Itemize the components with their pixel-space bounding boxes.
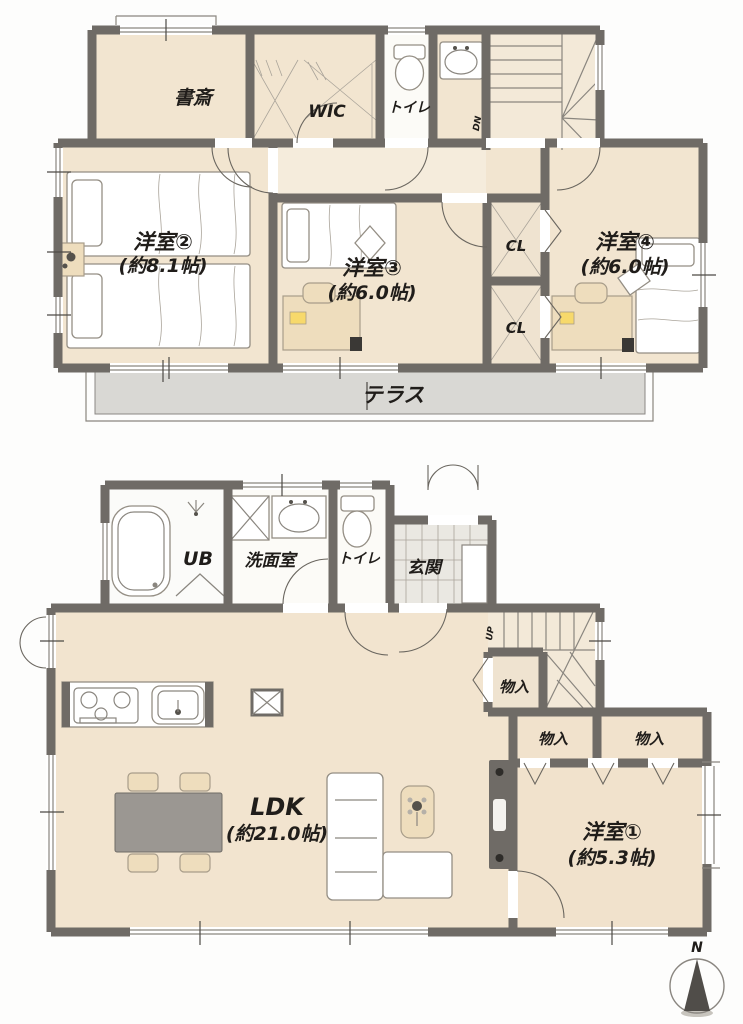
- toilet-2f-icon: [394, 45, 425, 90]
- label-bedroom1-size: (約5.3帖): [567, 847, 656, 869]
- compass-icon: N: [670, 940, 724, 1017]
- label-storage-left: 物入: [538, 730, 568, 748]
- label-wic: WIC: [308, 102, 346, 122]
- label-washroom: 洗面室: [245, 551, 299, 571]
- label-study: 書斎: [174, 87, 215, 109]
- label-bath: UB: [183, 548, 213, 570]
- vanity-sink-icon: [272, 496, 326, 538]
- label-bedroom2-size: (約8.1帖): [118, 255, 207, 277]
- label-closet-upper: CL: [506, 237, 527, 255]
- label-bedroom4-size: (約6.0帖): [580, 256, 669, 278]
- compass-north-label: N: [691, 940, 703, 956]
- label-bedroom3: 洋室③: [342, 256, 402, 280]
- basin-2f-icon: [440, 42, 483, 79]
- floor-plan-drawing: 書斎 WIC トイレ DN 洋室② (約8.1帖) 洋室③ (約6.0帖) CL…: [0, 0, 743, 1024]
- side-table-icon: [401, 786, 434, 838]
- kitchen-counter-icon: [62, 682, 213, 727]
- washing-machine-icon: [231, 496, 269, 540]
- label-bedroom2: 洋室②: [133, 230, 193, 254]
- pipe-space-icon: [252, 690, 282, 715]
- toilet-1f-icon: [341, 496, 374, 547]
- label-bedroom3-size: (約6.0帖): [327, 282, 416, 304]
- label-storage-hall: 物入: [499, 678, 529, 696]
- label-entrance: 玄関: [407, 558, 444, 578]
- label-ldk-size: (約21.0帖): [226, 823, 328, 845]
- label-toilet-2f: トイレ: [388, 100, 431, 116]
- floor-plan-page: 書斎 WIC トイレ DN 洋室② (約8.1帖) 洋室③ (約6.0帖) CL…: [0, 0, 743, 1024]
- label-storage-right: 物入: [634, 730, 664, 748]
- label-bedroom4: 洋室④: [595, 230, 655, 254]
- tv-board-icon: [489, 760, 510, 869]
- label-bedroom1: 洋室①: [582, 820, 642, 844]
- label-toilet-1f: トイレ: [338, 551, 381, 567]
- label-closet-lower: CL: [506, 319, 527, 337]
- label-terrace: テラス: [362, 383, 425, 407]
- label-ldk: LDK: [250, 793, 306, 821]
